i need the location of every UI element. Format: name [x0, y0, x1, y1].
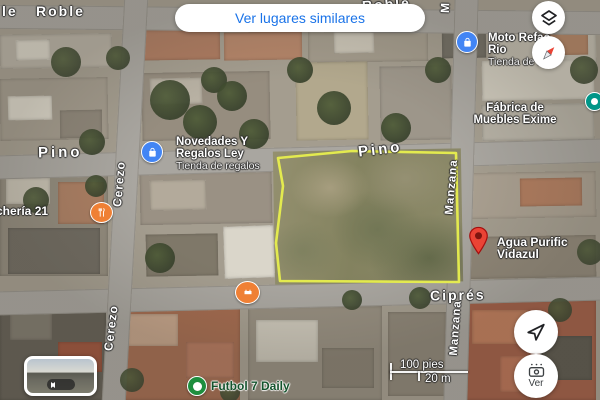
street-label-manzana-top-fragment: M [438, 3, 452, 13]
streetview-arrow-right-icon [51, 382, 55, 388]
recenter-navigate-button[interactable] [514, 310, 558, 354]
scale-bar: 100 pies 20 m [388, 356, 483, 388]
layers-button[interactable] [532, 1, 565, 34]
poi-fabrica-line1: Fábrica de [452, 102, 578, 114]
poi-label-futbol[interactable]: Futbol 7 Daily [211, 379, 290, 393]
shopping-bag-icon [462, 37, 473, 48]
street-label-cipres: Ciprés [430, 287, 486, 304]
soccer-poi-icon[interactable] [187, 376, 207, 396]
poi-agua-line2: Vidazul [497, 248, 600, 260]
soccer-ball-dot [193, 382, 202, 391]
layers-icon [540, 9, 558, 27]
scale-metric-label: 20 m [425, 373, 451, 385]
scale-imperial-label: 100 pies [400, 359, 443, 371]
compass-button[interactable] [532, 36, 565, 69]
street-label-roble-fragment: le [2, 3, 18, 19]
poi-novedades-line1: Novedades Y [176, 136, 260, 148]
streetview-ver-label: Ver [528, 378, 543, 389]
street-label-roble: Roble [36, 3, 85, 19]
restaurant-icon [96, 207, 107, 218]
poi-label-loncheria[interactable]: chería 21 [0, 205, 48, 217]
restaurant-poi-icon-loncheria[interactable] [90, 202, 113, 223]
poi-label-novedades[interactable]: Novedades Y Regalos Ley Tienda de regalo… [176, 136, 260, 172]
restaurant-icon [242, 287, 254, 299]
shopping-bag-poi-icon-top[interactable] [456, 31, 478, 53]
teal-poi-icon[interactable] [585, 92, 600, 111]
compass-icon [539, 43, 559, 63]
map-pin-icon[interactable] [468, 226, 489, 256]
streetview-preview-thumbnail[interactable] [24, 356, 97, 396]
camera-view-icon [527, 363, 546, 377]
satellite-map-canvas[interactable]: le Roble Roble M Pino Pino Cerezo Cerezo… [0, 0, 600, 400]
teal-poi-dot [591, 98, 598, 105]
poi-novedades-line2: Regalos Ley [176, 148, 260, 160]
streetview-pan-control[interactable] [47, 379, 75, 390]
poi-label-fabrica-muebles[interactable]: Fábrica de Muebles Exime [452, 102, 578, 126]
poi-label-agua-vidazul[interactable]: Agua Purific Vidazul [497, 236, 600, 260]
restaurant-poi-icon-center[interactable] [235, 281, 260, 304]
streetview-ver-button[interactable]: Ver [514, 354, 558, 398]
shopping-bag-poi-icon-novedades[interactable] [141, 141, 163, 163]
poi-fabrica-line2: Muebles Exime [452, 114, 578, 126]
street-label-pino-left: Pino [38, 144, 83, 162]
poi-novedades-subtitle: Tienda de regalos [176, 160, 260, 172]
scale-tick-metric [418, 371, 420, 381]
shopping-bag-icon [147, 147, 158, 158]
ver-lugares-similares-button[interactable]: Ver lugares similares [175, 4, 425, 32]
navigate-icon [525, 321, 547, 343]
